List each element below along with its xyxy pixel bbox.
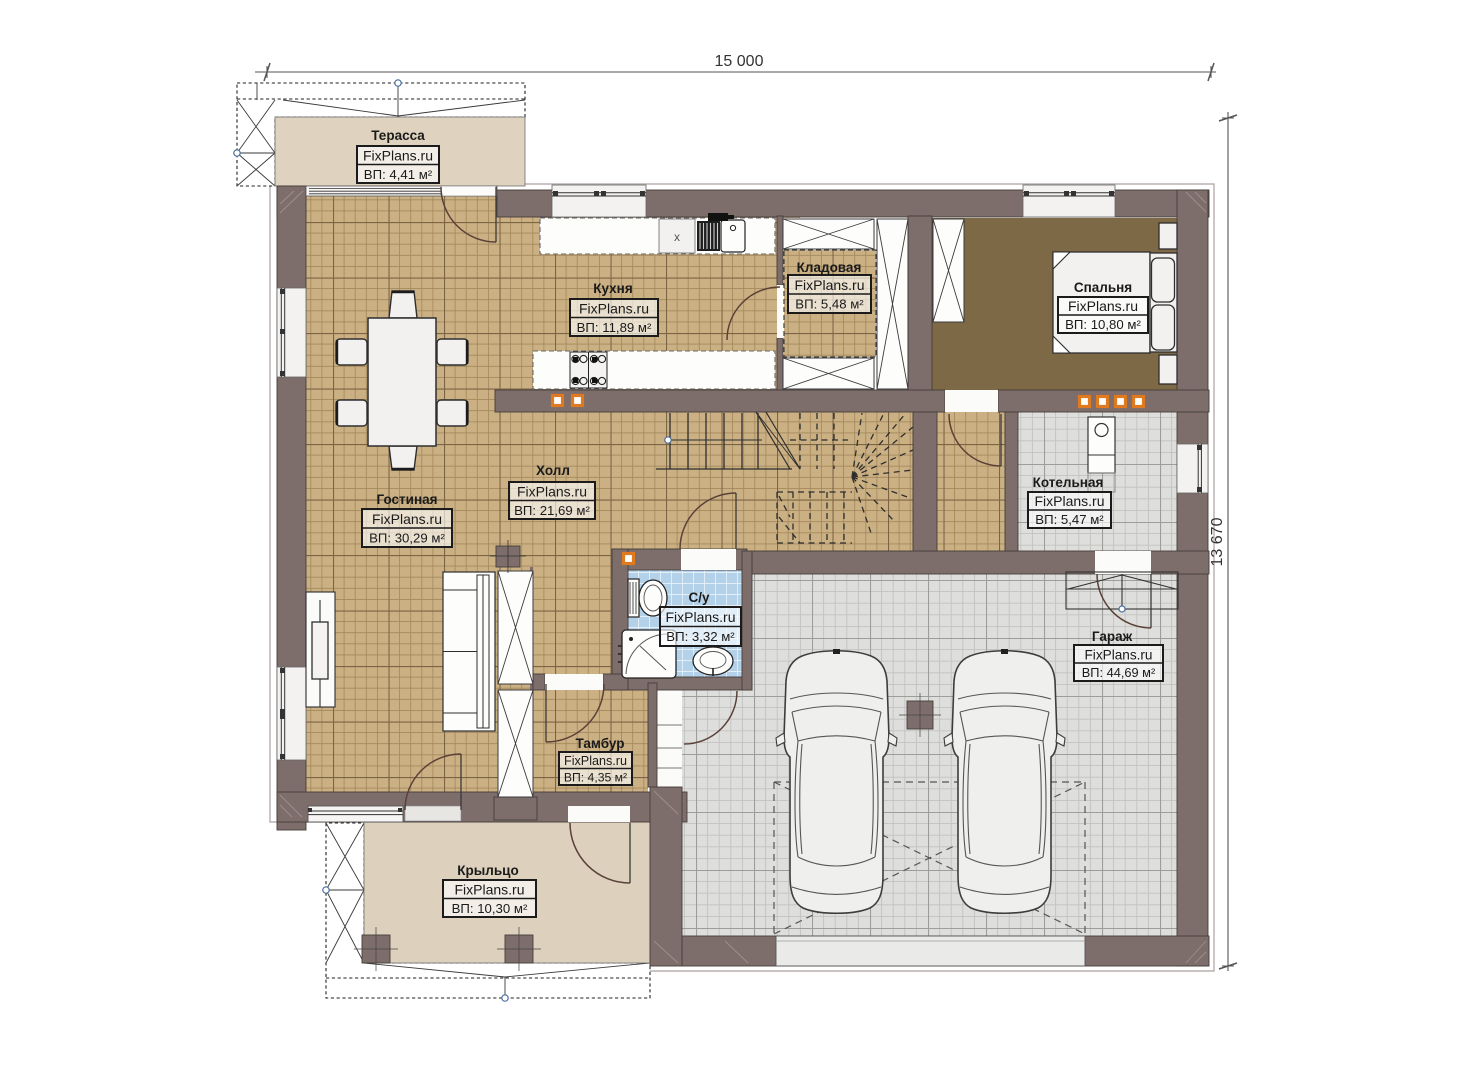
svg-text:FixPlans.ru: FixPlans.ru — [454, 882, 524, 898]
svg-text:x: x — [674, 230, 680, 244]
svg-text:13 670: 13 670 — [1209, 517, 1226, 566]
svg-text:ВП: 4,35 м²: ВП: 4,35 м² — [564, 771, 627, 785]
svg-text:ВП: 44,69 м²: ВП: 44,69 м² — [1082, 665, 1156, 680]
svg-text:Спальня: Спальня — [1074, 280, 1132, 295]
svg-text:ВП: 21,69 м²: ВП: 21,69 м² — [514, 503, 590, 518]
svg-text:Кладовая: Кладовая — [797, 260, 862, 275]
svg-text:ВП: 10,80 м²: ВП: 10,80 м² — [1065, 317, 1141, 332]
svg-text:ВП: 5,48 м²: ВП: 5,48 м² — [795, 297, 864, 312]
svg-text:FixPlans.ru: FixPlans.ru — [564, 754, 627, 768]
svg-text:FixPlans.ru: FixPlans.ru — [1034, 493, 1104, 509]
svg-text:ВП: 5,47 м²: ВП: 5,47 м² — [1035, 512, 1104, 527]
svg-text:ВП: 30,29 м²: ВП: 30,29 м² — [369, 531, 445, 546]
svg-text:15 000: 15 000 — [715, 53, 764, 70]
svg-text:FixPlans.ru: FixPlans.ru — [794, 277, 864, 293]
svg-text:FixPlans.ru: FixPlans.ru — [579, 301, 649, 317]
svg-text:FixPlans.ru: FixPlans.ru — [665, 609, 735, 625]
svg-text:FixPlans.ru: FixPlans.ru — [1068, 298, 1138, 314]
svg-text:ВП: 3,32 м²: ВП: 3,32 м² — [666, 629, 735, 644]
svg-text:ВП: 11,89 м²: ВП: 11,89 м² — [577, 320, 652, 335]
svg-text:Гостиная: Гостиная — [376, 492, 437, 507]
svg-text:Котельная: Котельная — [1033, 475, 1104, 490]
svg-text:С/у: С/у — [688, 590, 710, 605]
svg-text:Кухня: Кухня — [593, 281, 632, 296]
svg-text:Тамбур: Тамбур — [576, 736, 625, 751]
svg-text:Гараж: Гараж — [1092, 629, 1133, 644]
svg-text:FixPlans.ru: FixPlans.ru — [372, 511, 442, 527]
svg-text:ВП: 4,41 м²: ВП: 4,41 м² — [364, 167, 433, 182]
svg-text:ВП: 10,30 м²: ВП: 10,30 м² — [452, 901, 528, 916]
svg-text:FixPlans.ru: FixPlans.ru — [1085, 648, 1153, 663]
svg-text:Крыльцо: Крыльцо — [457, 863, 518, 878]
svg-text:FixPlans.ru: FixPlans.ru — [363, 148, 433, 164]
svg-text:FixPlans.ru: FixPlans.ru — [517, 484, 587, 500]
svg-text:Терасса: Терасса — [371, 128, 425, 143]
svg-text:Холл: Холл — [536, 463, 570, 478]
